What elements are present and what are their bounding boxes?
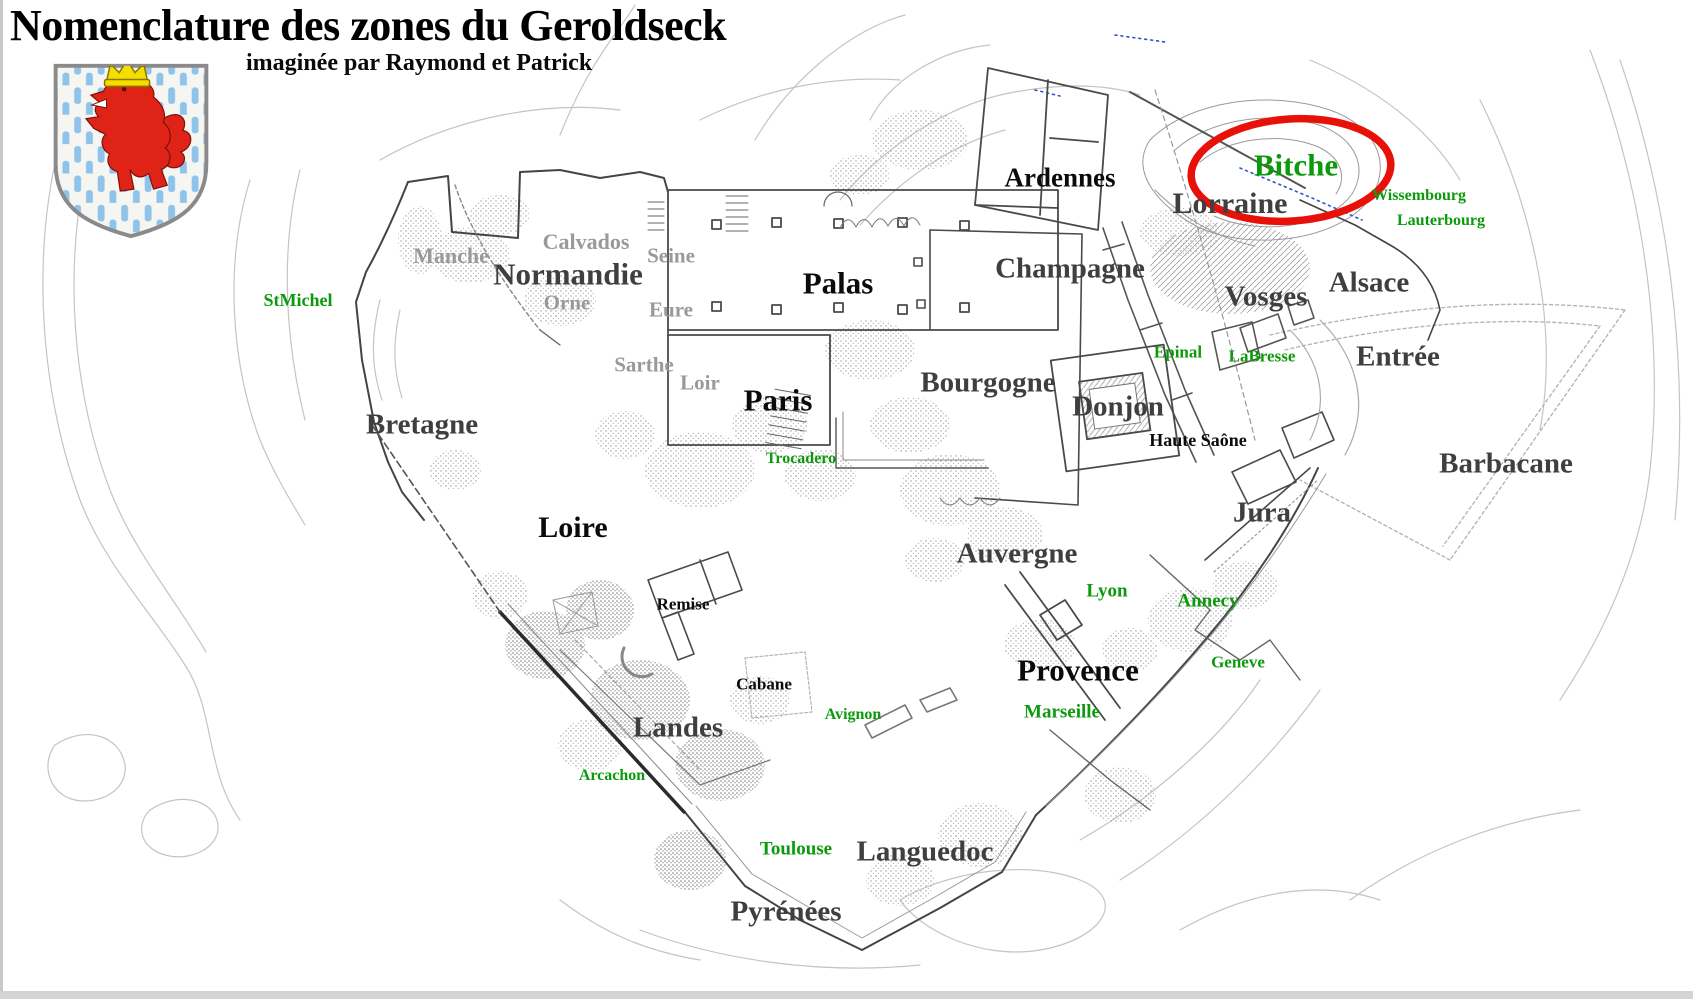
castle-map-page: Nomenclature des zones du Geroldseck ima… (0, 0, 1693, 999)
page-title: Nomenclature des zones du Geroldseck (10, 0, 726, 51)
left-edge-strip (0, 0, 3, 999)
donjon-keep (1051, 345, 1179, 472)
crown-icon (105, 57, 150, 86)
bitche-highlight-ellipse (1188, 112, 1395, 228)
page-subtitle: imaginée par Raymond et Patrick (246, 50, 592, 77)
barbacane-outline (1270, 304, 1625, 560)
castle-plan-drawing (0, 0, 1693, 999)
terrain-contours (43, 5, 1680, 968)
luxembourg-crest-icon (47, 56, 215, 242)
vegetation-stipple (398, 110, 1310, 906)
bottom-edge-strip (0, 991, 1693, 999)
